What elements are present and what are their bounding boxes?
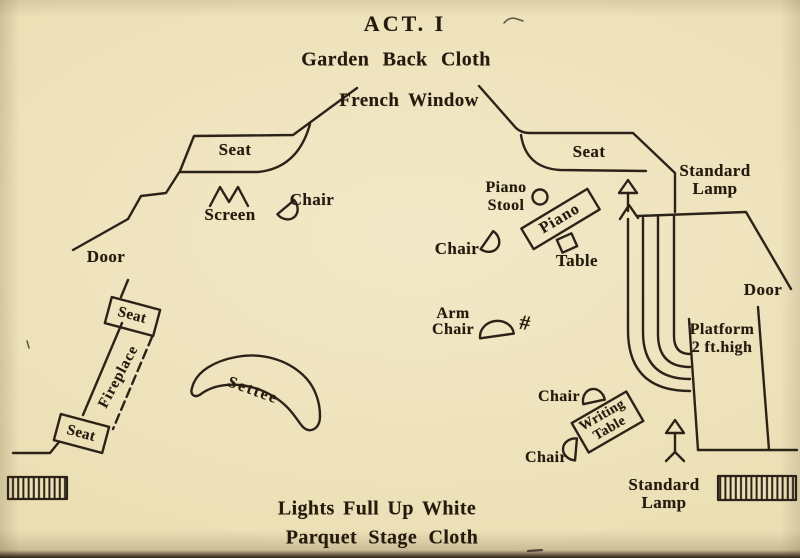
chair-piano-icon <box>481 231 504 256</box>
left-wall <box>73 88 357 250</box>
seat-right-label: Seat <box>573 142 606 162</box>
standard-lamp-top-label: Standard Lamp <box>679 162 750 198</box>
piano-stool-line2: Stool <box>485 197 526 215</box>
hatched-block-right <box>718 476 796 500</box>
piano-stool-label: Piano Stool <box>485 179 526 215</box>
door-left-label: Door <box>87 247 125 267</box>
chair-writing-bottom-label: Chair <box>525 449 567 467</box>
curved-steps <box>620 205 690 391</box>
piano-stool-line1: Piano <box>485 179 526 197</box>
platform-top-edge <box>638 212 791 289</box>
chair-writing-top-icon <box>581 387 605 404</box>
fireplace-shape <box>83 280 152 429</box>
chair-screen-label: Chair <box>290 190 335 210</box>
standard-lamp-top-line2: Lamp <box>679 180 750 198</box>
french-window-label: French Window <box>339 90 479 112</box>
door-right-label: Door <box>744 280 782 300</box>
act-title: ACT. I <box>364 11 446 37</box>
standard-lamp-bottom-line2: Lamp <box>628 494 699 512</box>
standard-lamp-top-line1: Standard <box>679 162 750 180</box>
standard-lamp-top-icon <box>619 180 637 211</box>
page-edge-shadow <box>0 550 800 558</box>
stage-cloth-note: Parquet Stage Cloth <box>286 527 479 550</box>
arm-chair-line2: Chair <box>432 322 474 338</box>
standard-lamp-bottom-icon <box>666 420 684 461</box>
standard-lamp-bottom-label: Standard Lamp <box>628 476 699 512</box>
table-shape <box>557 233 577 252</box>
platform-line2: 2 ft.high <box>690 339 755 357</box>
bottom-left-wall <box>13 442 59 453</box>
hatched-block-left <box>8 477 67 499</box>
arm-chair-line1: Arm <box>432 306 474 322</box>
screen-zigzag-icon <box>210 187 248 206</box>
table-label: Table <box>556 251 598 271</box>
arm-chair-icon <box>478 319 514 339</box>
screen-label: Screen <box>204 205 255 225</box>
standard-lamp-bottom-line1: Standard <box>628 476 699 494</box>
seat-left-label: Seat <box>219 140 252 160</box>
platform-line1: Platform <box>690 321 755 339</box>
arm-chair-label: Arm Chair <box>432 306 474 338</box>
chair-piano-label: Chair <box>435 239 480 259</box>
chair-writing-top-label: Chair <box>538 388 580 406</box>
backdrop-label: Garden Back Cloth <box>301 49 490 72</box>
stage-plan-page: ACT. I Garden Back Cloth French Window S… <box>0 0 800 558</box>
piano-stool-icon <box>533 190 548 205</box>
platform-label: Platform 2 ft.high <box>690 321 755 357</box>
lights-note: Lights Full Up White <box>278 498 476 521</box>
